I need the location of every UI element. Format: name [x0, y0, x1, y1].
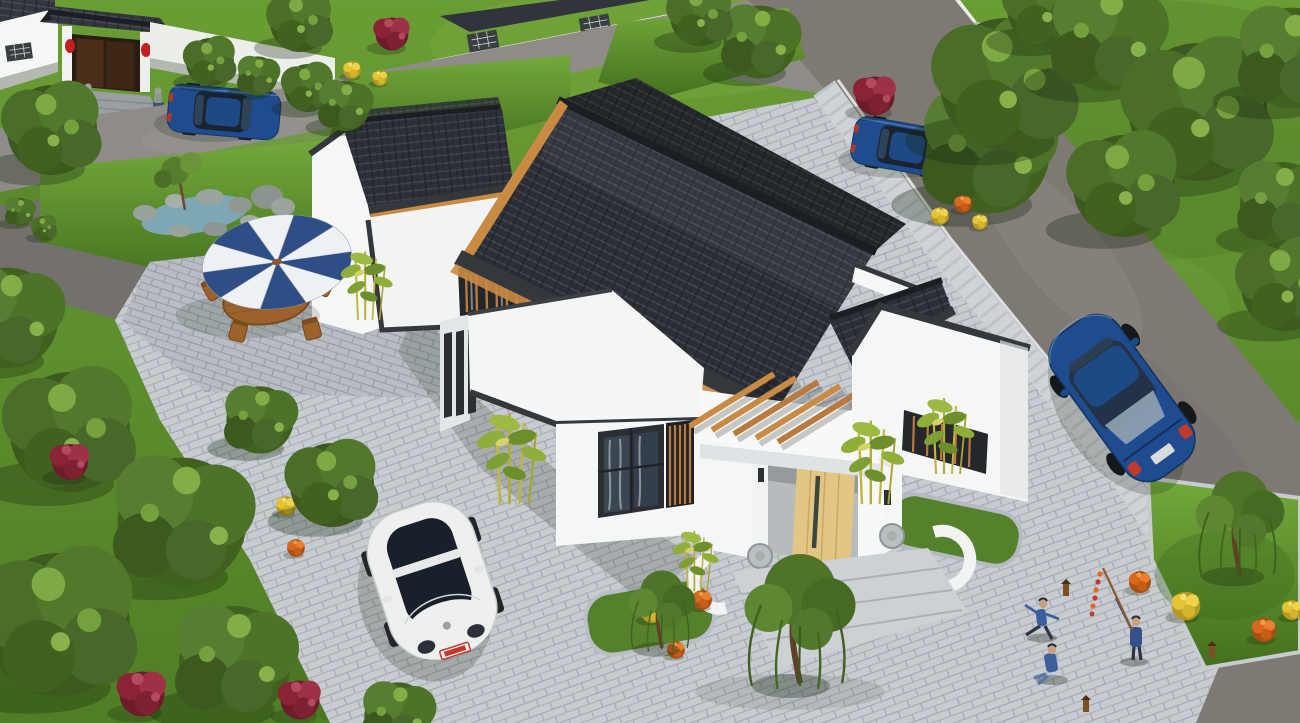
gate-door-left: [76, 38, 104, 88]
scene-svg: [0, 0, 1300, 723]
slot-window: [444, 332, 452, 418]
slot-window: [456, 330, 464, 416]
curtain-window: [598, 424, 664, 518]
render-canvas: [0, 0, 1300, 723]
red-lantern: [65, 39, 75, 53]
rock: [133, 205, 157, 221]
wall-sconce: [758, 468, 764, 482]
slat-screen: [666, 420, 694, 508]
gate-door-right: [106, 41, 134, 90]
red-lantern: [141, 43, 151, 57]
